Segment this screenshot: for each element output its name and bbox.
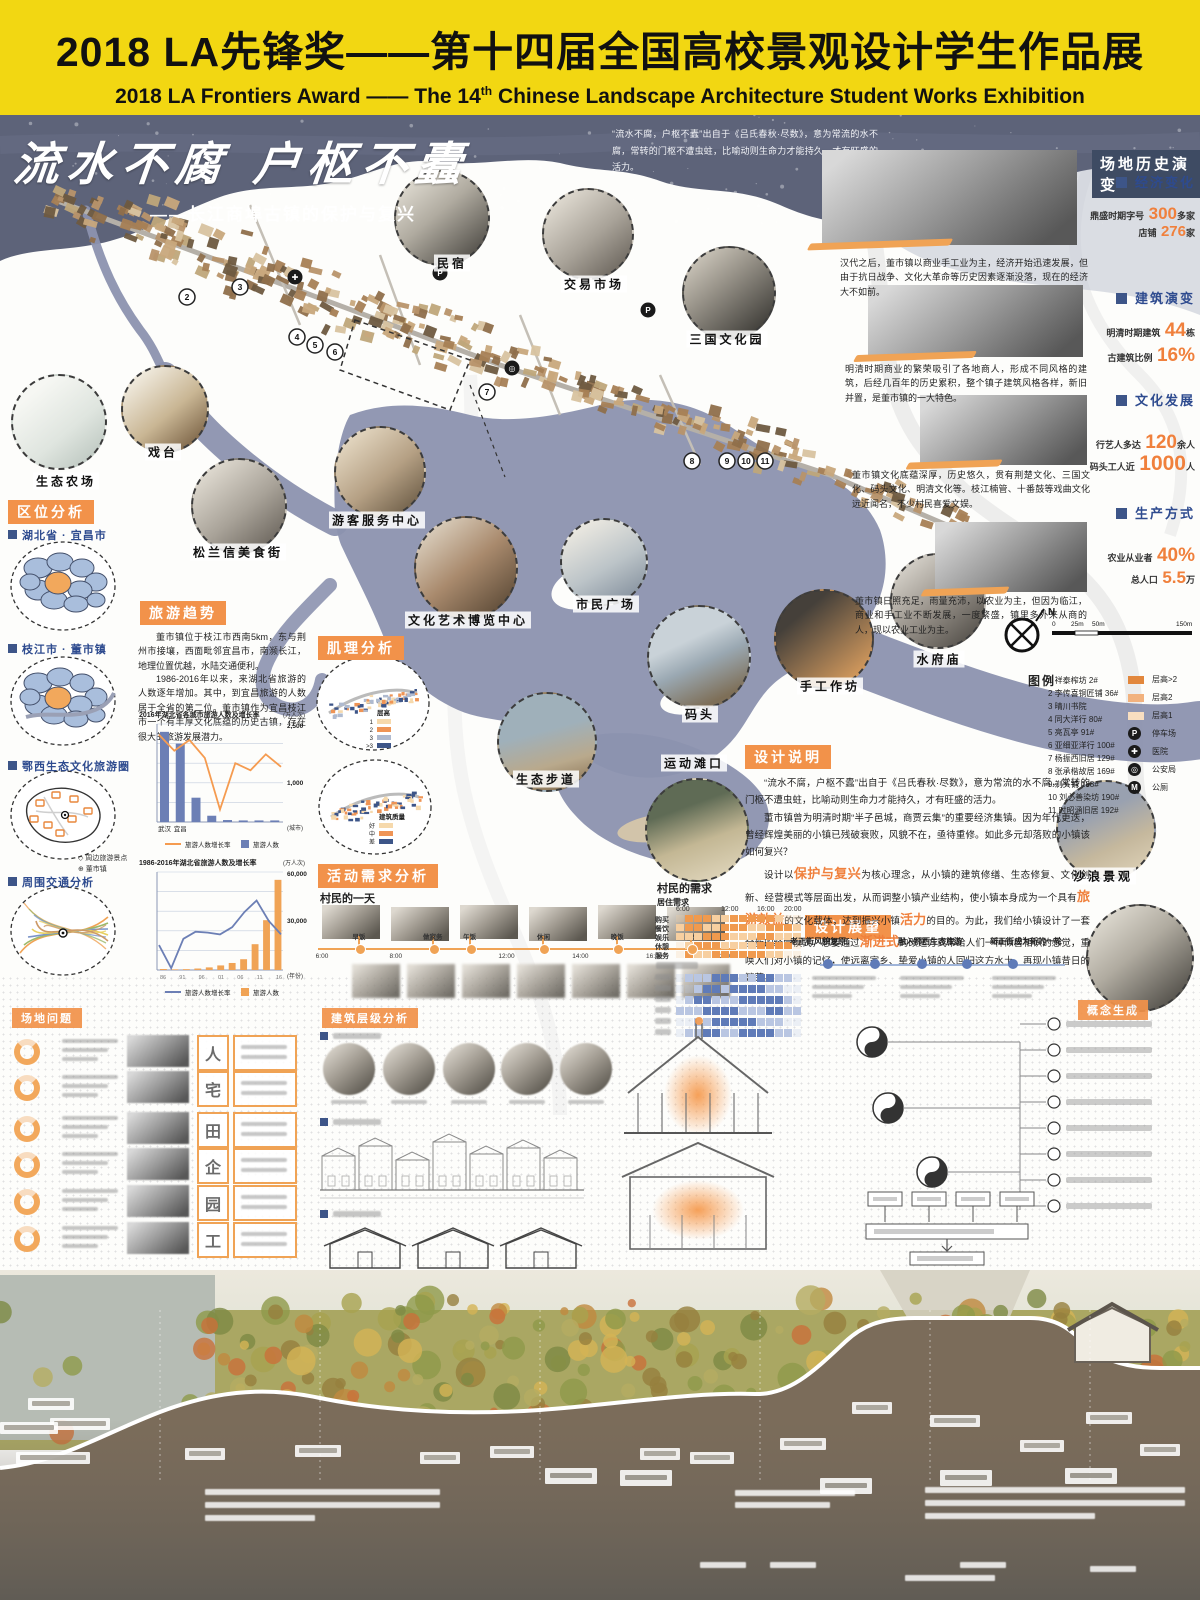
svg-text:10: 10 — [741, 456, 751, 466]
section-location-header: 区位分析 — [8, 500, 94, 524]
section-texture-header: 肌理分析 — [318, 636, 404, 660]
map-number-badge: 11 — [757, 453, 773, 469]
render-flow-box — [1065, 1468, 1117, 1484]
render-flow-bar — [1070, 1473, 1112, 1478]
svg-text:6: 6 — [333, 347, 338, 357]
svg-text:◎: ◎ — [509, 364, 516, 373]
villager-needs-title: 村民的需求 — [657, 880, 712, 896]
render-caption-blur — [205, 1502, 440, 1508]
render-label-bar — [644, 1451, 676, 1456]
render-label-bar — [32, 1401, 70, 1406]
map-number-badge: 3 — [232, 279, 248, 295]
section-problems-header: 场地问题 — [12, 1008, 82, 1028]
north-compass: N — [1006, 607, 1055, 651]
svg-text:N: N — [1048, 607, 1055, 618]
section-activity-header: 活动需求分析 — [318, 864, 438, 888]
render-caption-blur — [925, 1513, 1095, 1519]
render-label-box — [1086, 1412, 1132, 1424]
svg-text:25m: 25m — [1071, 621, 1084, 628]
render-caption-blur — [925, 1487, 1185, 1493]
render-label-bar — [856, 1405, 888, 1410]
dot-grid-texture — [0, 975, 1200, 1270]
render-label-bar — [494, 1449, 530, 1454]
svg-text:0: 0 — [1052, 621, 1056, 628]
svg-text:P: P — [645, 306, 651, 315]
section-tourism-header: 旅游趋势 — [140, 601, 226, 625]
render-label-bar — [4, 1425, 54, 1430]
section-concept-header: 概念生成 — [1078, 1000, 1148, 1020]
map-number-badge: 6 — [327, 344, 343, 360]
render-label-bar — [694, 1455, 730, 1460]
svg-text:7: 7 — [485, 387, 490, 397]
svg-text:11: 11 — [761, 456, 770, 466]
render-flow-box — [820, 1478, 872, 1494]
render-label-box — [1140, 1444, 1180, 1456]
svg-text:✚: ✚ — [292, 273, 299, 282]
tourism-paragraph-1: 董市镇位于枝江市西南5km，东与荆州市接壤，西面毗邻宜昌市，南濒长江，地理位置优… — [138, 630, 306, 673]
design-note-body: “流水不腐，户枢不蠹”出自于《吕氏春秋·尽数》，意为常流的水不腐，常转的门枢不遭… — [745, 776, 1090, 989]
project-title-calligraphy: 流水不腐 户枢不蠹 — [11, 128, 474, 194]
render-caption-blur — [960, 1562, 1006, 1568]
svg-text:50m: 50m — [1092, 621, 1105, 628]
section-design-note-header: 设计说明 — [745, 745, 831, 769]
map-number-badge: 1 — [80, 425, 96, 441]
render-caption-blur — [770, 1562, 816, 1568]
render-label-box — [28, 1398, 74, 1410]
render-label-box — [852, 1402, 892, 1414]
svg-text:P: P — [437, 269, 443, 278]
svg-text:4: 4 — [295, 332, 300, 342]
render-label-bar — [189, 1451, 221, 1456]
design-note-text: “流水不腐，户枢不蠹”出自于《吕氏春秋·尽数》，意为常流的水不腐，常转的门枢不遭… — [745, 778, 1090, 806]
render-label-box — [16, 1452, 90, 1464]
poster-page: 2018 LA先锋奖——第十四届全国高校景观设计学生作品展 2018 LA Fr… — [0, 0, 1200, 1600]
render-caption-blur — [205, 1489, 440, 1495]
render-label-bar — [1090, 1415, 1128, 1420]
render-label-box — [930, 1415, 980, 1427]
banner: 2018 LA先锋奖——第十四届全国高校景观设计学生作品展 2018 LA Fr… — [0, 0, 1200, 115]
map-poi-badge: P — [641, 303, 656, 318]
project-subtitle: ——长江商埠古镇的保护与复兴 — [150, 200, 416, 225]
svg-text:1: 1 — [86, 428, 91, 438]
design-note-highlight: 保护与复兴 — [794, 866, 861, 881]
render-label-bar — [424, 1455, 456, 1460]
render-flow-box — [940, 1470, 992, 1486]
map-poi-badge: ✚ — [288, 270, 303, 285]
map-number-badge: 10 — [738, 453, 754, 469]
render-label-box — [50, 1418, 110, 1430]
render-landscape — [0, 1270, 1200, 1600]
svg-text:9: 9 — [725, 456, 730, 466]
render-label-bar — [20, 1455, 86, 1460]
design-note-text: 设计以 — [764, 870, 794, 881]
map-number-badge: 5 — [307, 337, 323, 353]
render-label-bar — [934, 1418, 976, 1423]
render-caption-blur — [925, 1500, 1185, 1506]
render-label-bar — [1144, 1447, 1176, 1452]
site-section-render — [0, 1270, 1200, 1600]
render-label-bar — [299, 1448, 337, 1453]
render-flow-bar — [550, 1473, 592, 1478]
render-label-box — [0, 1422, 58, 1434]
section-building-header: 建筑层级分析 — [322, 1008, 418, 1028]
svg-text:8: 8 — [690, 456, 695, 466]
render-label-box — [690, 1452, 734, 1464]
section-history-header: 场地历史演变 — [1092, 150, 1200, 198]
map-number-badge: 8 — [684, 453, 700, 469]
render-caption-blur — [205, 1515, 315, 1521]
design-note-highlight: 活力 — [900, 912, 926, 927]
render-label-bar — [784, 1441, 822, 1446]
svg-text:5: 5 — [313, 340, 318, 350]
quote-text: “流水不腐，户枢不蠹”出自于《吕氏春秋·尽数》，意为常流的水不腐，常转的门枢不遭… — [612, 126, 878, 176]
render-label-box — [640, 1448, 680, 1460]
svg-text:3: 3 — [238, 282, 243, 292]
render-flow-bar — [945, 1475, 987, 1480]
tourism-paragraph-2: 1986-2016年以来，来湖北省旅游的人数逐年增加。其中，到宜昌旅游的人数居于… — [138, 672, 306, 744]
render-flow-bar — [825, 1483, 867, 1488]
needs-group1-title: 居住需求 — [657, 897, 689, 908]
render-caption-blur — [1090, 1566, 1136, 1572]
render-label-box — [780, 1438, 826, 1450]
render-caption-blur — [700, 1562, 746, 1568]
design-note-highlight: 渐进式 — [860, 934, 899, 949]
map-legend-header: 图例 — [1028, 672, 1056, 689]
poster-subtitle: 2018 LA Frontiers Award —— The 14th Chin… — [0, 84, 1200, 109]
render-label-box — [1020, 1440, 1064, 1452]
map-poi-badge: ◎ — [505, 361, 520, 376]
render-label-box — [185, 1448, 225, 1460]
render-flow-bar — [625, 1475, 667, 1480]
render-caption-blur — [905, 1575, 995, 1581]
render-label-bar — [1024, 1443, 1060, 1448]
render-label-box — [490, 1446, 534, 1458]
map-number-badge: 7 — [479, 384, 495, 400]
map-number-badge: 9 — [719, 453, 735, 469]
render-label-bar — [54, 1421, 106, 1426]
poster-title: 2018 LA先锋奖——第十四届全国高校景观设计学生作品展 — [0, 18, 1200, 78]
render-label-box — [420, 1452, 460, 1464]
render-flow-box — [620, 1470, 672, 1486]
svg-text:150m: 150m — [1176, 621, 1192, 628]
map-number-badge: 4 — [289, 329, 305, 345]
design-note-text: 的文化载体，达到振兴小镇 — [784, 916, 900, 927]
render-label-box — [295, 1445, 341, 1457]
design-note-text: 董市镇曾为明清时期“半子邑城，商贾云集”的重要经济集镇。因为年代更迭，曾经辉煌美… — [745, 813, 1090, 857]
render-flow-box — [545, 1468, 597, 1484]
render-caption-blur — [735, 1502, 830, 1508]
villager-day-title: 村民的一天 — [320, 890, 375, 906]
map-number-badge: 2 — [179, 289, 195, 305]
map-poi-badge: P — [433, 266, 448, 281]
svg-text:2: 2 — [185, 292, 190, 302]
